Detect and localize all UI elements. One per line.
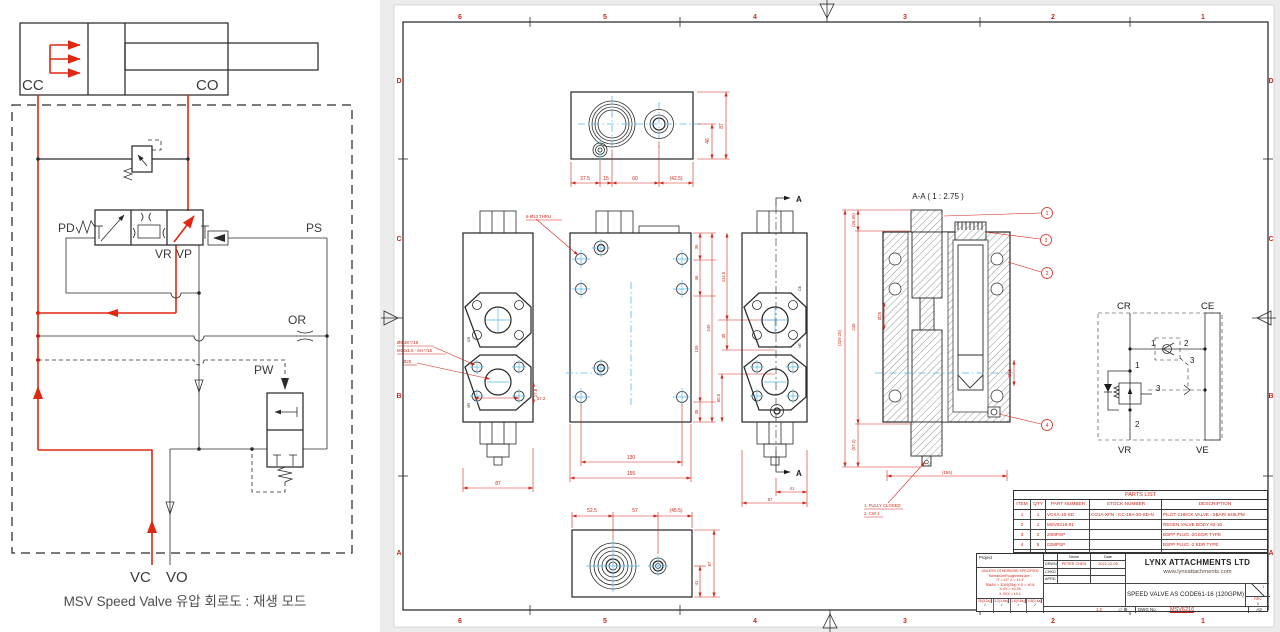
drwn-name: PETER CHEN: [1058, 561, 1091, 569]
svg-text:(155): (155): [942, 470, 953, 475]
svg-text:CR: CR: [1117, 301, 1131, 312]
svg-text:(26.95): (26.95): [851, 213, 856, 227]
svg-text:Ø25: Ø25: [877, 311, 882, 320]
svg-text:46: 46: [694, 275, 699, 280]
port-or-label: OR: [288, 313, 306, 327]
svg-text:VR: VR: [1118, 445, 1131, 456]
svg-text:155: 155: [627, 471, 636, 477]
valve-block-boundary: [12, 105, 352, 553]
svg-text:52.5: 52.5: [587, 508, 597, 514]
svg-text:2: 2: [1051, 618, 1055, 625]
svg-text:87: 87: [707, 561, 712, 566]
svg-text:Ø6.38 ▽18: Ø6.38 ▽18: [397, 340, 419, 345]
screenshot-root: CC CO: [0, 0, 1280, 632]
svg-text:D: D: [1268, 78, 1273, 85]
roughness-check-icon: ✓: [977, 603, 993, 607]
pw-valve-symbol: [166, 336, 327, 565]
col-part-number: PART NUMBER: [1046, 500, 1090, 509]
pilot-lines: OR PW: [38, 245, 329, 449]
svg-text:(45.5): (45.5): [669, 508, 682, 514]
roughness-check-icon: ✓: [994, 603, 1010, 607]
svg-text:1: 1: [1135, 361, 1140, 370]
svg-text:6: 6: [458, 14, 462, 21]
svg-text:35: 35: [694, 409, 699, 414]
date-header: Date: [1091, 554, 1126, 561]
svg-text:Ø25: Ø25: [403, 359, 412, 364]
dwg-no-value: MSV6216: [1170, 607, 1248, 613]
company-cell: LYNX ATTACHMENTS LTD www.lynxattachments…: [1126, 554, 1269, 584]
svg-text:CE: CE: [798, 285, 802, 291]
directional-valve-symbol: PD PS VR VP: [58, 210, 327, 336]
svg-text:5: 5: [603, 14, 607, 21]
cylinder-symbol: CC CO: [20, 23, 318, 95]
title-block: Project UNLESS OTHERWISE SPECIFIED Toler…: [976, 553, 1268, 612]
svg-text:35: 35: [721, 333, 726, 338]
svg-text:1: 1: [1046, 211, 1049, 217]
col-stock-number: STOCK NUMBER: [1090, 500, 1162, 509]
svg-text:3: 3: [903, 14, 907, 21]
name-header: Name: [1058, 554, 1091, 561]
svg-text:87: 87: [495, 481, 501, 487]
hydraulic-schematic: CC CO: [0, 0, 380, 632]
port-pw-label: PW: [254, 363, 274, 377]
drwn-label: DRWN: [1044, 561, 1058, 569]
port-ps-label: PS: [306, 221, 322, 235]
drwn-date: 2022-12-05: [1091, 561, 1126, 569]
svg-text:VR: VR: [467, 403, 471, 408]
svg-text:35: 35: [694, 244, 699, 249]
svg-text:6-Ø13 THRU: 6-Ø13 THRU: [526, 214, 551, 219]
port-vp-label: VP: [176, 247, 192, 261]
svg-text:60: 60: [632, 176, 638, 182]
port-pd-label: PD: [58, 221, 75, 235]
svg-text:3: 3: [1156, 384, 1161, 393]
parts-list: PARTS LIST ITEM QTY PART NUMBER STOCK NU…: [1013, 490, 1268, 553]
roughness-check-icon: ✓: [1027, 603, 1043, 607]
sheet-size: A3: [1248, 607, 1269, 613]
port-vc-label: VC: [130, 569, 151, 586]
svg-text:B: B: [1268, 393, 1273, 400]
svg-text:A: A: [796, 195, 802, 204]
rev-cell: 1 REV 1: [1245, 584, 1269, 606]
parts-row: 11 VCXA-10-SDCO1A-XFN : CC-19A-30-SD-N P…: [1014, 510, 1267, 520]
svg-text:M10x1.5 - 6H ▽15: M10x1.5 - 6H ▽15: [397, 348, 433, 353]
svg-text:4: 4: [753, 14, 757, 21]
svg-text:41: 41: [790, 486, 795, 491]
dwg-row: 1:2 ▱ ⊕ DWG No. MSV6216 A3: [1044, 606, 1269, 613]
svg-text:57: 57: [632, 508, 638, 514]
svg-text:4: 4: [753, 618, 757, 625]
svg-text:2: 2: [1051, 14, 1055, 21]
svg-text:1: 1: [1151, 339, 1156, 348]
spring-symbol: [278, 467, 292, 482]
svg-text:CE: CE: [1201, 301, 1214, 312]
svg-text:135: 135: [694, 345, 699, 353]
roughness-check-icon: ✓: [1011, 603, 1027, 607]
svg-text:245: 245: [706, 324, 711, 332]
parts-row: 32 20MPSP BSPP PLUG -20 EDR TYPE: [1014, 530, 1267, 540]
svg-text:C: C: [396, 236, 401, 243]
spring-symbol: [76, 221, 95, 233]
rev-triangle: [1246, 584, 1270, 596]
svg-text:A: A: [796, 469, 802, 478]
svg-text:2: 2: [1135, 420, 1140, 429]
svg-text:B: B: [396, 393, 401, 400]
svg-text:15: 15: [603, 176, 609, 182]
chkd-label: CHKD: [1044, 569, 1058, 577]
svg-text:2. CW 1: 2. CW 1: [864, 511, 880, 516]
parts-row: 45 02MPSP BSPP PLUG -2 EDR TYPE: [1014, 540, 1267, 550]
svg-text:46: 46: [705, 138, 711, 144]
red-flow-path: [33, 95, 188, 565]
svg-text:4: 4: [1046, 423, 1049, 429]
sign-corner: [1044, 554, 1058, 561]
relief-valve-symbol: [36, 140, 190, 180]
svg-text:(329.15): (329.15): [837, 329, 842, 346]
svg-text:87: 87: [719, 123, 725, 129]
svg-text:1: 1: [1201, 618, 1205, 625]
roughness-row: 25(3.2a)✓ 3.2(1.6a)✓ 1.6(0.8a)✓ 0.8(0.4a…: [977, 599, 1044, 613]
svg-text:5: 5: [603, 618, 607, 625]
svg-text:6: 6: [458, 618, 462, 625]
svg-text:60.5: 60.5: [716, 393, 721, 402]
scale-value: 1:2: [1087, 607, 1111, 613]
svg-text:114.5: 114.5: [721, 271, 726, 282]
svg-text:245: 245: [851, 323, 856, 331]
svg-text:A: A: [396, 550, 401, 557]
company-name: LYNX ATTACHMENTS LTD: [1126, 558, 1269, 567]
svg-text:CR: CR: [467, 336, 471, 342]
svg-text:3: 3: [1045, 238, 1048, 244]
tolerance-notes: UNLESS OTHERWISE SPECIFIED Tolerance/Rou…: [977, 568, 1044, 599]
parts-row: 21 MSV6216-01 REGEN VALVE BODY 62-16: [1014, 520, 1267, 530]
svg-text:2: 2: [1184, 339, 1189, 348]
svg-text:3: 3: [903, 618, 907, 625]
svg-text:1. FULLY CLOSED: 1. FULLY CLOSED: [864, 503, 901, 508]
company-website: www.lynxattachments.com: [1126, 569, 1269, 575]
svg-text:3: 3: [1190, 356, 1195, 365]
port-cc-label: CC: [22, 77, 44, 94]
svg-text:D: D: [396, 78, 401, 85]
svg-text:VE: VE: [798, 343, 802, 348]
svg-text:(57.2): (57.2): [851, 439, 856, 451]
svg-text:41: 41: [694, 580, 699, 585]
svg-text:2: 2: [1046, 271, 1049, 277]
project-cell: Project: [977, 554, 1044, 568]
svg-text:C: C: [1268, 236, 1273, 243]
drawing-title: SPEED VALVE AS CODE61-16 (120GPM): [1126, 584, 1245, 606]
schematic-caption: MSV Speed Valve 유압 회로도 : 재생 모드: [64, 594, 307, 609]
svg-text:130: 130: [627, 455, 636, 461]
flow-arrows: [50, 45, 80, 73]
svg-text:VE: VE: [1196, 445, 1209, 456]
col-qty: QTY: [1031, 500, 1046, 509]
svg-text:A-A ( 1 : 2.75 ): A-A ( 1 : 2.75 ): [912, 192, 964, 201]
port-co-label: CO: [196, 77, 219, 94]
svg-text:1: 1: [1201, 14, 1205, 21]
aprd-label: APRD: [1044, 576, 1058, 584]
svg-text:87: 87: [768, 497, 773, 502]
dwg-no-label: DWG No.: [1135, 607, 1170, 613]
svg-text:A: A: [1268, 550, 1273, 557]
col-item: ITEM: [1014, 500, 1031, 509]
projection-symbol-icon: ▱ ⊕: [1111, 607, 1135, 613]
port-vo-label: VO: [166, 569, 188, 586]
port-vr-label: VR: [155, 247, 172, 261]
svg-text:57.2: 57.2: [537, 396, 546, 401]
svg-text:(42.5): (42.5): [669, 176, 682, 182]
svg-text:37.5: 37.5: [580, 176, 590, 182]
col-description: DESCRIPTION: [1162, 500, 1267, 509]
parts-list-header: ITEM QTY PART NUMBER STOCK NUMBER DESCRI…: [1014, 500, 1267, 510]
parts-list-title: PARTS LIST: [1014, 491, 1267, 500]
svg-text:Ø26: Ø26: [1007, 368, 1012, 377]
